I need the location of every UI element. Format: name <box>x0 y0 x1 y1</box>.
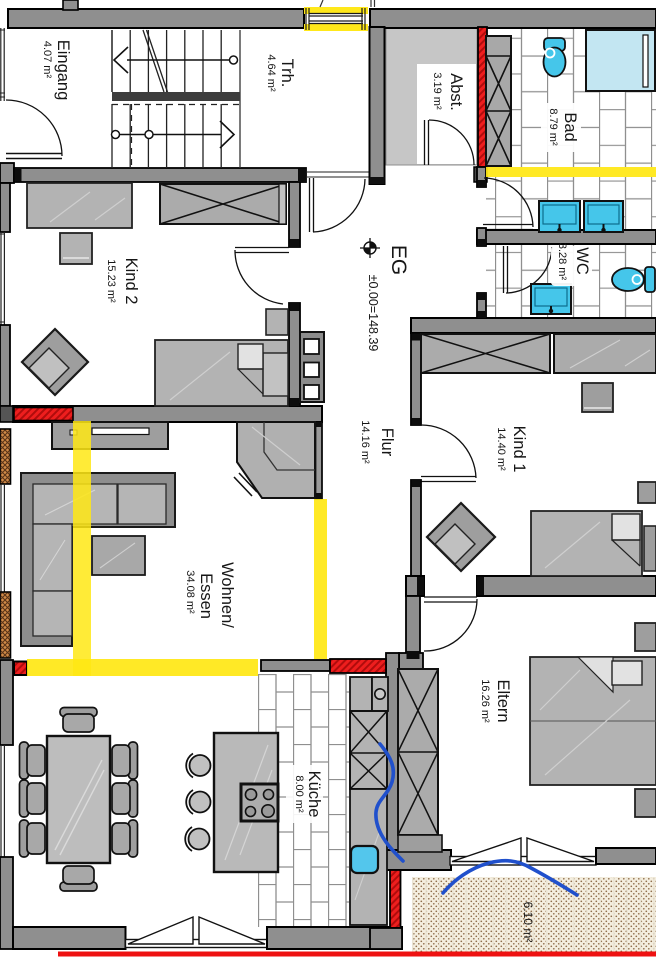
svg-text:Flur: Flur <box>378 428 396 457</box>
svg-text:Wohnen/: Wohnen/ <box>218 562 236 628</box>
svg-text:14.16 m²: 14.16 m² <box>359 420 371 464</box>
svg-text:Küche: Küche <box>305 771 323 818</box>
svg-text:Eingang: Eingang <box>54 40 72 101</box>
svg-text:14.40 m²: 14.40 m² <box>495 427 507 471</box>
svg-text:±0.00=148.39: ±0.00=148.39 <box>366 275 380 352</box>
svg-text:Abst.: Abst. <box>447 73 465 111</box>
svg-text:Kind 1: Kind 1 <box>510 426 528 473</box>
svg-text:6.10 m²: 6.10 m² <box>521 902 535 943</box>
svg-text:16.26 m²: 16.26 m² <box>479 679 491 723</box>
svg-text:Bad: Bad <box>561 112 579 141</box>
svg-text:4.64 m²: 4.64 m² <box>265 54 277 92</box>
svg-text:3.19 m²: 3.19 m² <box>431 72 443 110</box>
svg-text:3.28 m²: 3.28 m² <box>556 243 568 281</box>
svg-text:34.08 m²: 34.08 m² <box>184 570 196 614</box>
svg-text:4.07 m²: 4.07 m² <box>41 41 53 79</box>
svg-text:8.00 m²: 8.00 m² <box>293 775 305 813</box>
svg-text:Essen: Essen <box>197 573 215 619</box>
svg-text:8.79 m²: 8.79 m² <box>547 108 559 146</box>
svg-text:Eltern: Eltern <box>494 679 512 722</box>
svg-text:Trh.: Trh. <box>278 59 296 88</box>
svg-text:EG: EG <box>387 245 410 275</box>
svg-text:WC: WC <box>573 247 591 275</box>
svg-text:15.23 m²: 15.23 m² <box>105 259 117 303</box>
svg-text:Kind 2: Kind 2 <box>122 258 140 305</box>
